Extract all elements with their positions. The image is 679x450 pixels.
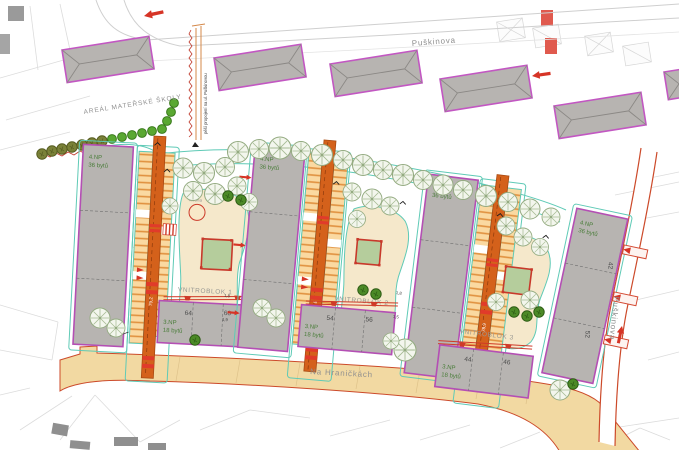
house-number: 44 (464, 356, 472, 364)
pedestrian-link-label: pěší propojení na ul. Puškinovou (203, 73, 208, 134)
house-number: 52 (584, 331, 591, 339)
existing-structure (545, 38, 557, 54)
house-number: 54 (326, 315, 334, 323)
playground (354, 238, 383, 267)
house-number: 64 (185, 310, 193, 317)
existing-structure (8, 6, 24, 21)
building-units-label: 18 bytů (163, 327, 183, 335)
site-plan: AREÁL MATEŘSKÉ ŠKOLY pěší propojení na u… (0, 0, 679, 450)
dimension-mark: 1,8 (224, 293, 231, 299)
dimension-mark: 1,9 (222, 317, 229, 323)
road-stationing: 79,2 (148, 297, 153, 307)
building-floors-label: 3.NP (163, 320, 177, 327)
house-number: 56 (365, 316, 373, 324)
building-floors-label: 3.NP (304, 324, 318, 331)
utility-box (163, 224, 177, 236)
house-number: 46 (503, 359, 511, 367)
building-units-label: 36 bytů (88, 162, 108, 170)
playground (200, 237, 233, 270)
existing-structure (0, 34, 10, 54)
building-floors-label: 4.NP (89, 155, 103, 162)
house-number: 42 (606, 262, 613, 270)
well (189, 204, 206, 221)
